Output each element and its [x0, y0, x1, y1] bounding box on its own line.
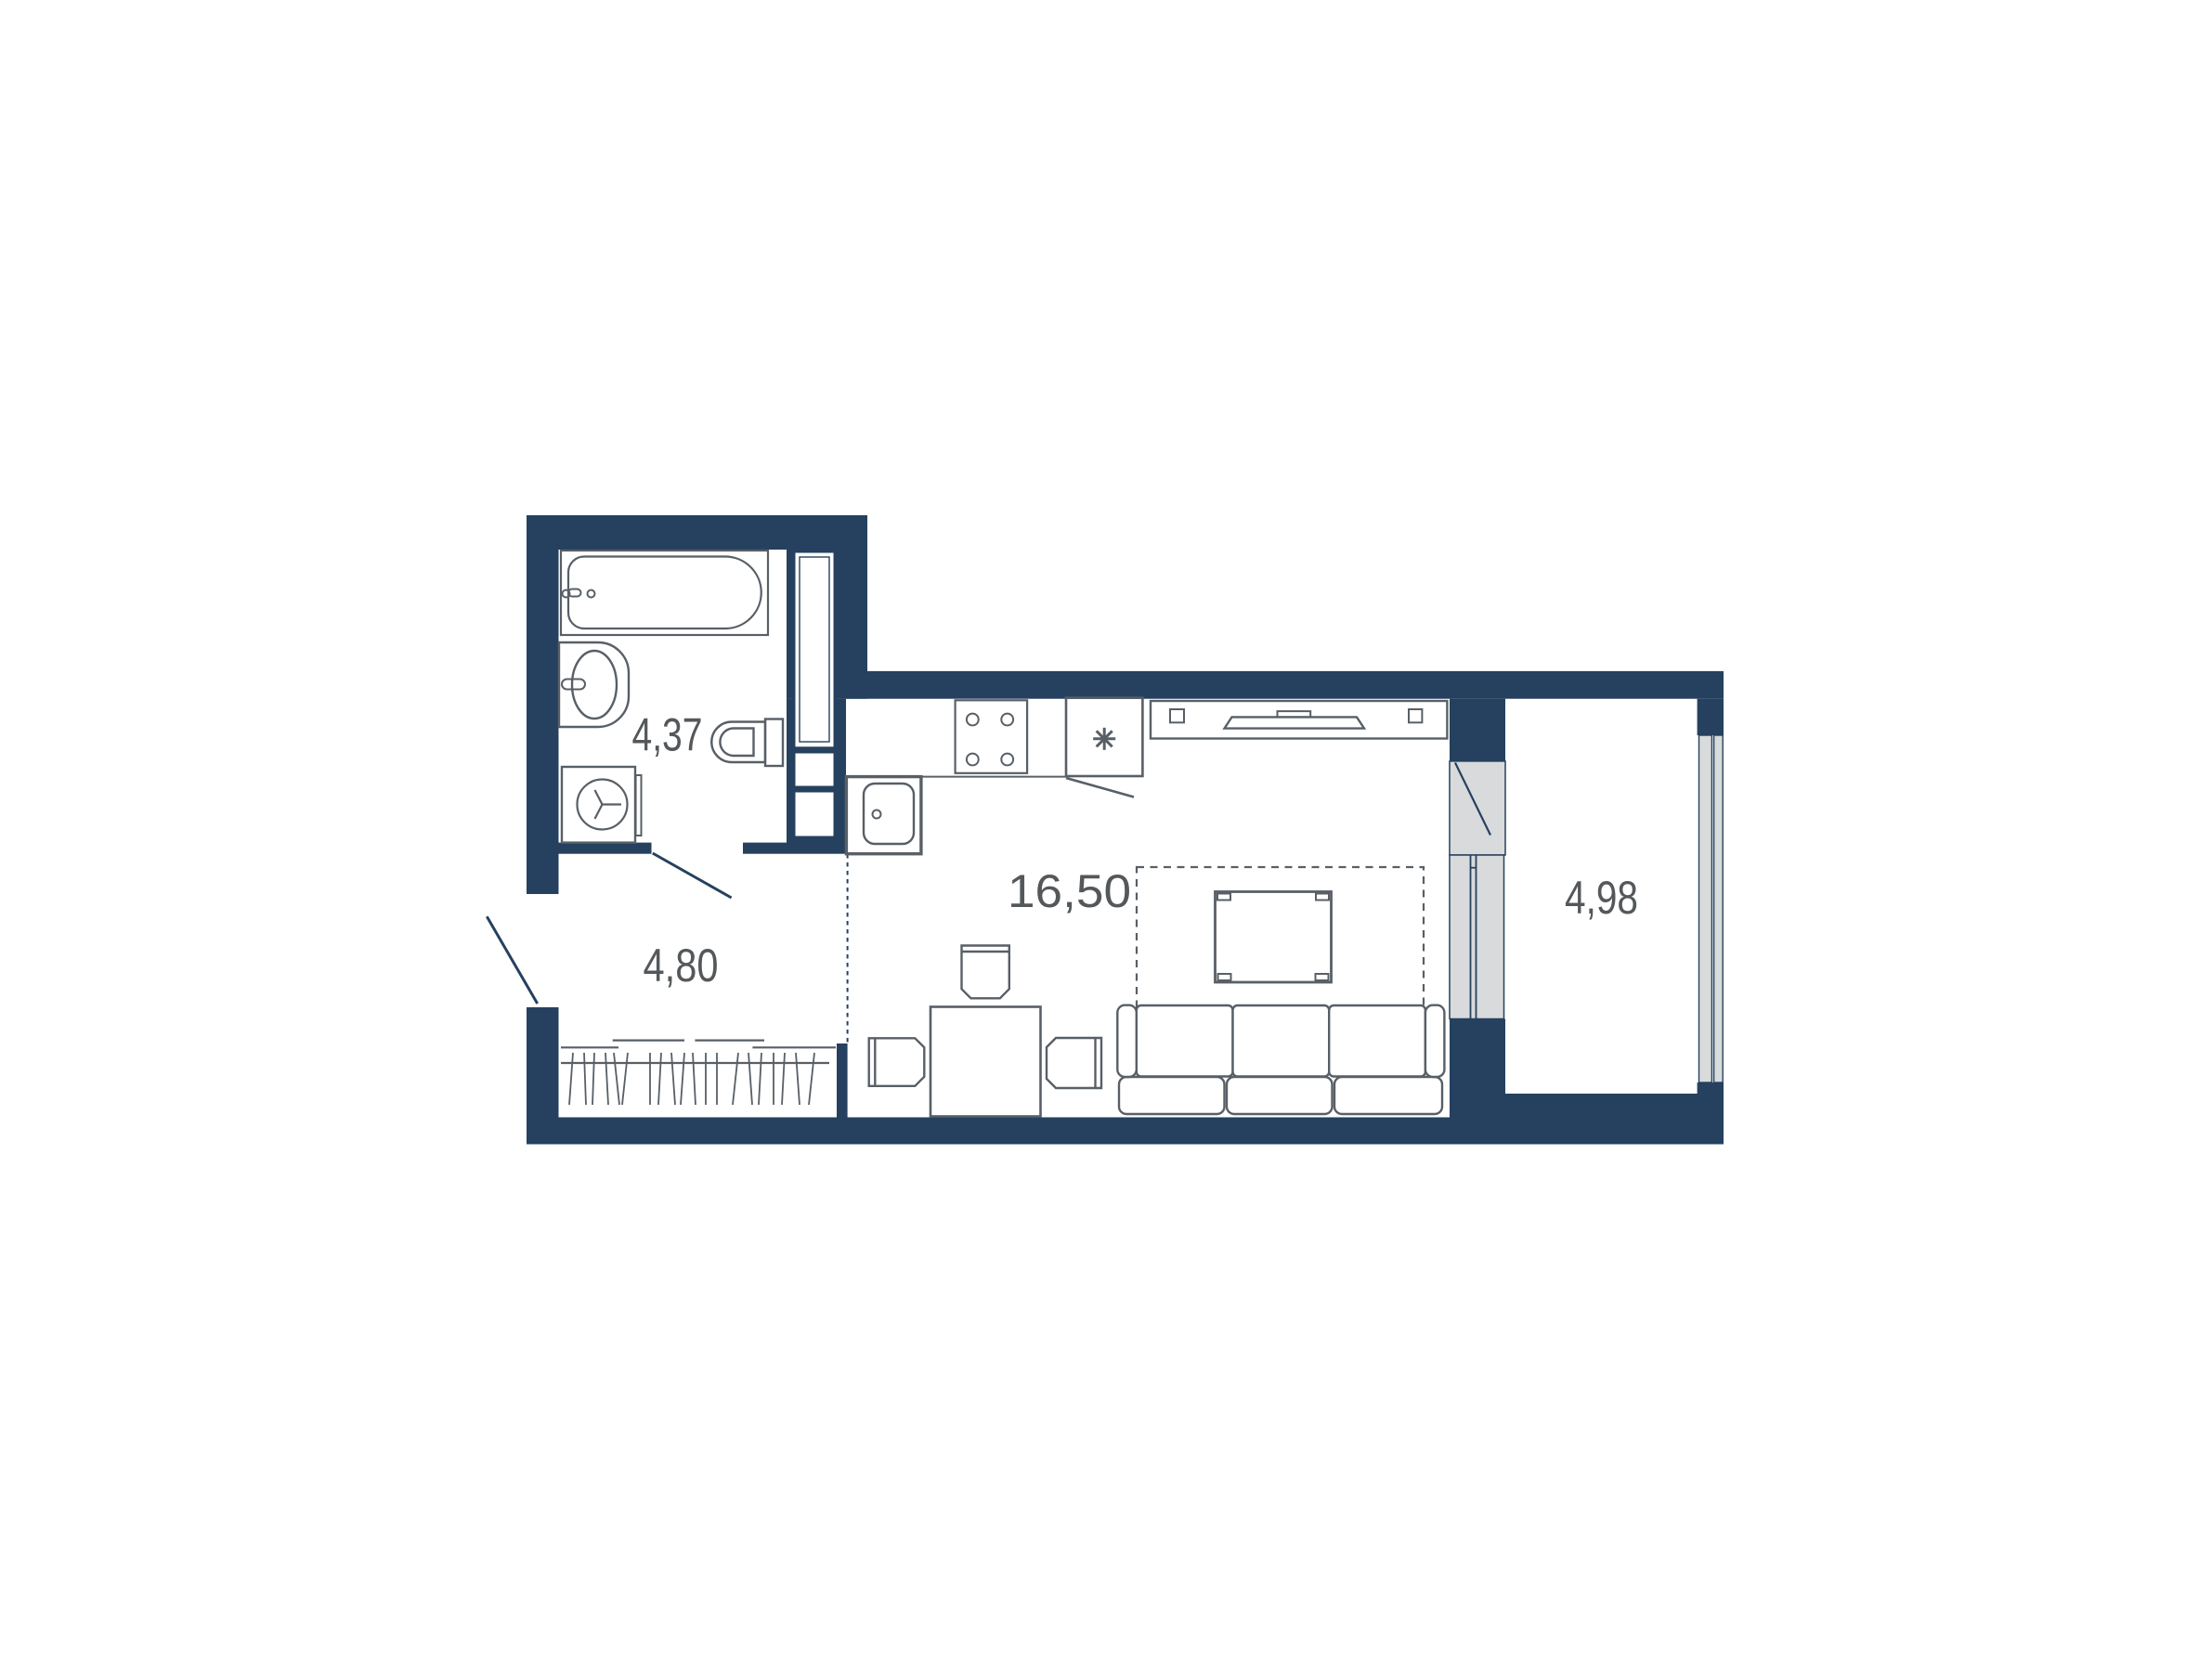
svg-text:16,50: 16,50 [1008, 865, 1131, 917]
svg-text:4,37: 4,37 [632, 709, 703, 761]
svg-text:4,98: 4,98 [1565, 872, 1638, 924]
svg-text:4,80: 4,80 [644, 940, 719, 992]
